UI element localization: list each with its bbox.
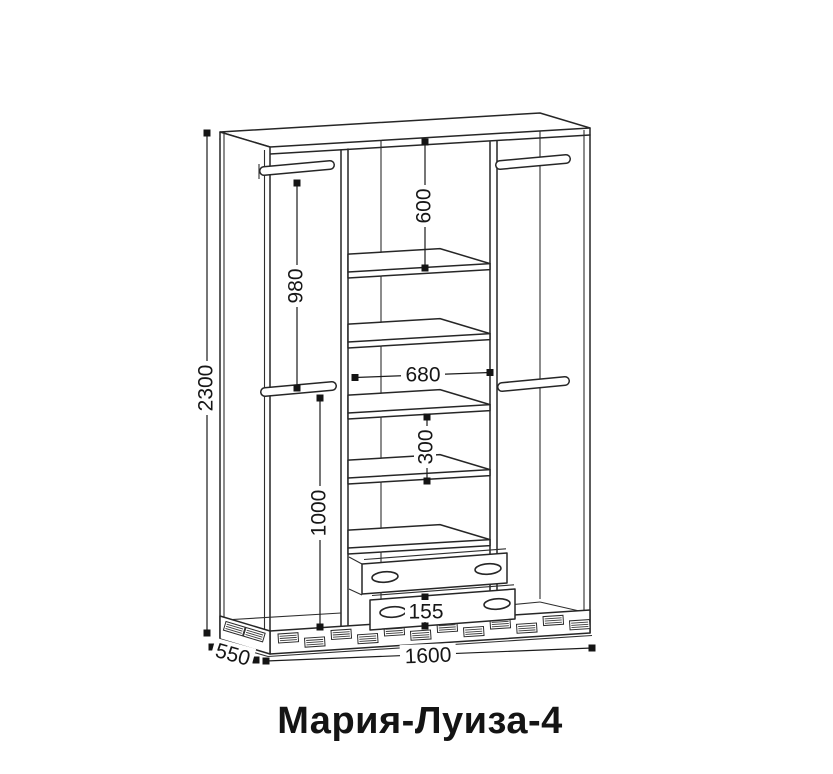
dim-label-overall-width: 1600 (404, 644, 452, 669)
shelf (348, 390, 490, 419)
dimension-lower-section-1000: 1000 (307, 395, 331, 631)
shelf (348, 249, 490, 278)
shelves (348, 249, 490, 554)
vent-slot (543, 615, 564, 625)
vent-slot (278, 633, 299, 643)
vent-slot (517, 623, 538, 633)
dim-label-overall-height: 2300 (195, 365, 218, 412)
wardrobe-drawing-page: 2300 980 1000 600 68 (0, 0, 833, 774)
vent-slot (411, 630, 432, 640)
product-title: Мария-Луиза-4 (277, 700, 563, 742)
vent-slot (305, 637, 326, 647)
dim-label-shelf-gap: 300 (415, 429, 438, 464)
dimension-rod-drop-980: 980 (284, 180, 308, 392)
hanger-rod-right-top (500, 159, 566, 165)
vent-slot (358, 633, 379, 643)
dimension-center-width-680: 680 (352, 363, 494, 387)
wardrobe-diagram: 2300 980 1000 600 68 (0, 0, 833, 774)
top-panel (220, 113, 590, 154)
dimension-overall-height: 2300 (194, 130, 218, 637)
right-side-edge (584, 128, 590, 633)
partition-left (341, 149, 348, 627)
dim-label-rod-drop: 980 (285, 268, 308, 303)
drawer-side-edge (349, 557, 362, 564)
drawer-side-edge (349, 589, 362, 595)
hanger-rod-right-middle (502, 381, 565, 387)
vent-slot (464, 626, 485, 636)
shelf (348, 525, 490, 554)
partition-right (490, 141, 497, 617)
vent-slot (570, 620, 591, 630)
dim-label-center-width: 680 (405, 364, 440, 387)
dim-label-top-gap: 600 (413, 188, 436, 223)
vent-slot (331, 629, 352, 639)
dim-label-drawer-height: 155 (408, 601, 443, 624)
shelf (348, 319, 490, 348)
dim-label-lower-section: 1000 (308, 490, 331, 537)
